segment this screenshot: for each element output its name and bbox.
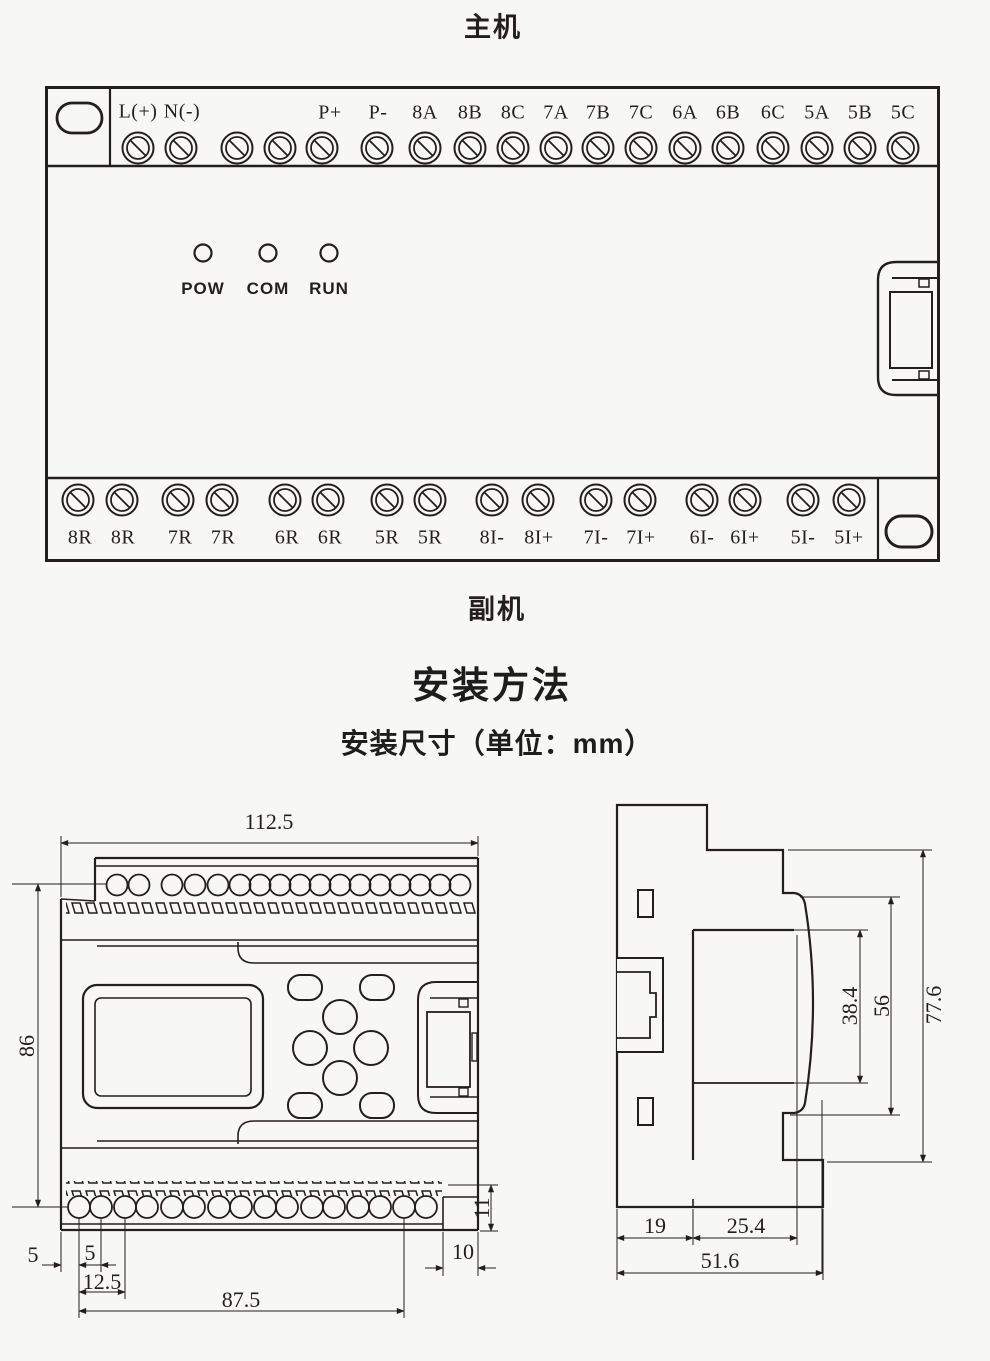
terminal-label: 7R bbox=[168, 527, 192, 550]
terminal-label: 6I+ bbox=[730, 527, 759, 550]
dim-hole-pitch: 5 bbox=[85, 1240, 96, 1266]
terminal-label: P+ bbox=[318, 102, 341, 125]
terminal-label: 7I- bbox=[584, 527, 609, 550]
terminal-label: 6A bbox=[672, 102, 697, 125]
terminal-label: 5C bbox=[891, 102, 915, 125]
vent-band-top bbox=[66, 901, 476, 917]
dim-right-step: 10 bbox=[452, 1239, 474, 1265]
terminal-label: 6R bbox=[275, 527, 299, 550]
device-diagram bbox=[0, 0, 990, 600]
terminal-label: 5B bbox=[848, 102, 872, 125]
terminal-label: 6I- bbox=[690, 527, 715, 550]
mount-hole-bottom bbox=[886, 516, 932, 547]
mount-hole-top bbox=[57, 103, 102, 133]
led-label-run: RUN bbox=[309, 279, 349, 299]
manual-page: 主机 副机 安装方法 安装尺寸（单位：mm） bbox=[0, 0, 990, 1361]
terminal-label: 7R bbox=[211, 527, 235, 550]
dim-mid-depth: 25.4 bbox=[727, 1213, 766, 1239]
terminal-label: 8I- bbox=[480, 527, 505, 550]
dim-hole-span: 87.5 bbox=[222, 1287, 261, 1313]
terminal-label: 8R bbox=[111, 527, 135, 550]
dim-front-height: 56 bbox=[869, 995, 895, 1017]
dim-overall-height: 86 bbox=[14, 1035, 40, 1057]
installation-drawings bbox=[0, 780, 990, 1361]
keypad bbox=[288, 975, 394, 1118]
terminal-label: L(+) bbox=[119, 101, 158, 124]
terminal-label: 5R bbox=[375, 527, 399, 550]
install-dims-heading: 安装尺寸（单位：mm） bbox=[341, 722, 654, 762]
lcd-bezel bbox=[83, 985, 263, 1108]
terminal-label: 5R bbox=[418, 527, 442, 550]
screw-terminal bbox=[123, 133, 154, 164]
led-run bbox=[321, 245, 338, 262]
terminal-label: 8B bbox=[458, 102, 482, 125]
dim-overall-width: 112.5 bbox=[245, 809, 294, 835]
vent-band-bottom bbox=[66, 1181, 442, 1196]
dim-rear-depth: 19 bbox=[644, 1213, 666, 1239]
terminal-label: 5I+ bbox=[834, 527, 863, 550]
dim-window-height: 38.4 bbox=[837, 987, 863, 1026]
dim-side-overall-height: 77.6 bbox=[921, 986, 947, 1025]
terminal-label: 6B bbox=[716, 102, 740, 125]
terminal-label: 6C bbox=[761, 102, 785, 125]
lcd-screen bbox=[95, 998, 251, 1096]
terminal-label: 7I+ bbox=[626, 527, 655, 550]
dim-overall-depth: 51.6 bbox=[701, 1248, 740, 1274]
dim-edge-to-hole: 5 bbox=[28, 1242, 39, 1268]
expansion-connector bbox=[878, 262, 939, 395]
install-method-heading: 安装方法 bbox=[412, 655, 572, 709]
side-view bbox=[617, 805, 823, 1207]
terminal-label: 8C bbox=[501, 102, 525, 125]
terminal-label: 8I+ bbox=[524, 527, 553, 550]
dim-hole-offset: 12.5 bbox=[83, 1269, 122, 1295]
led-label-pow: POW bbox=[181, 279, 225, 299]
terminal-label: N(-) bbox=[164, 101, 200, 124]
terminal-label: 7C bbox=[629, 102, 653, 125]
led-label-com: COM bbox=[247, 279, 290, 299]
led-com bbox=[260, 245, 277, 262]
terminal-label: 8R bbox=[68, 527, 92, 550]
terminal-label: 7A bbox=[543, 102, 568, 125]
terminal-label: 6R bbox=[318, 527, 342, 550]
terminal-label: P- bbox=[369, 102, 388, 125]
terminal-label: 5I- bbox=[791, 527, 816, 550]
front-view bbox=[61, 858, 478, 1230]
front-view-connector bbox=[418, 982, 478, 1113]
dim-terminal-height: 11 bbox=[469, 1197, 495, 1218]
terminal-label: 7B bbox=[586, 102, 610, 125]
terminal-label: 5A bbox=[804, 102, 829, 125]
terminal-label: 8A bbox=[412, 102, 437, 125]
led-pow bbox=[195, 245, 212, 262]
